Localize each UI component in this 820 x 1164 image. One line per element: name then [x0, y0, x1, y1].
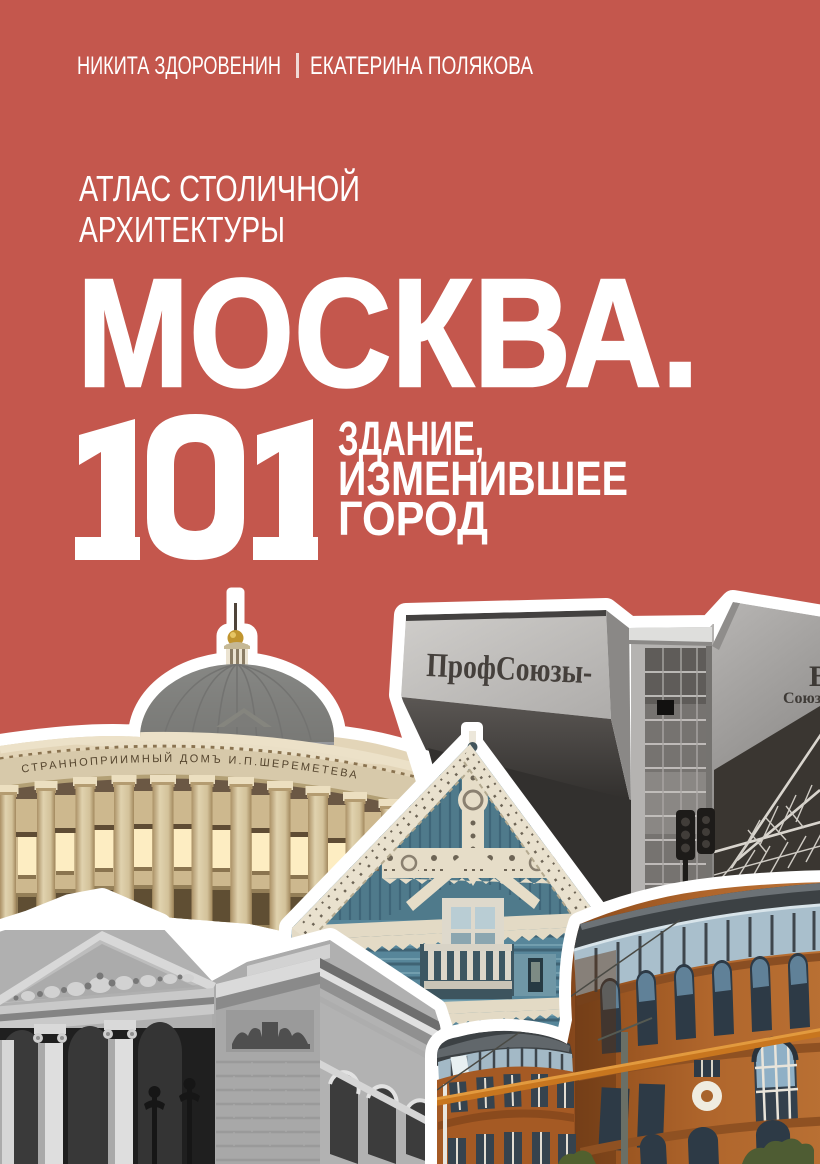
svg-text:В: В [809, 660, 820, 693]
svg-text:АТЛАС СТОЛИЧНОЙ: АТЛАС СТОЛИЧНОЙ [79, 167, 360, 209]
svg-text:ЕКАТЕРИНА ПОЛЯКОВА: ЕКАТЕРИНА ПОЛЯКОВА [310, 52, 533, 80]
svg-text:Союза: Союза [783, 690, 820, 707]
svg-text:ГОРОД: ГОРОД [338, 493, 488, 546]
svg-text:МОСКВА.: МОСКВА. [77, 247, 699, 419]
svg-text:АРХИТЕКТУРЫ: АРХИТЕКТУРЫ [79, 209, 285, 250]
svg-text:ПрофСоюзы-: ПрофСоюзы- [426, 647, 593, 691]
svg-text:НИКИТА ЗДОРОВЕНИН: НИКИТА ЗДОРОВЕНИН [77, 52, 281, 80]
